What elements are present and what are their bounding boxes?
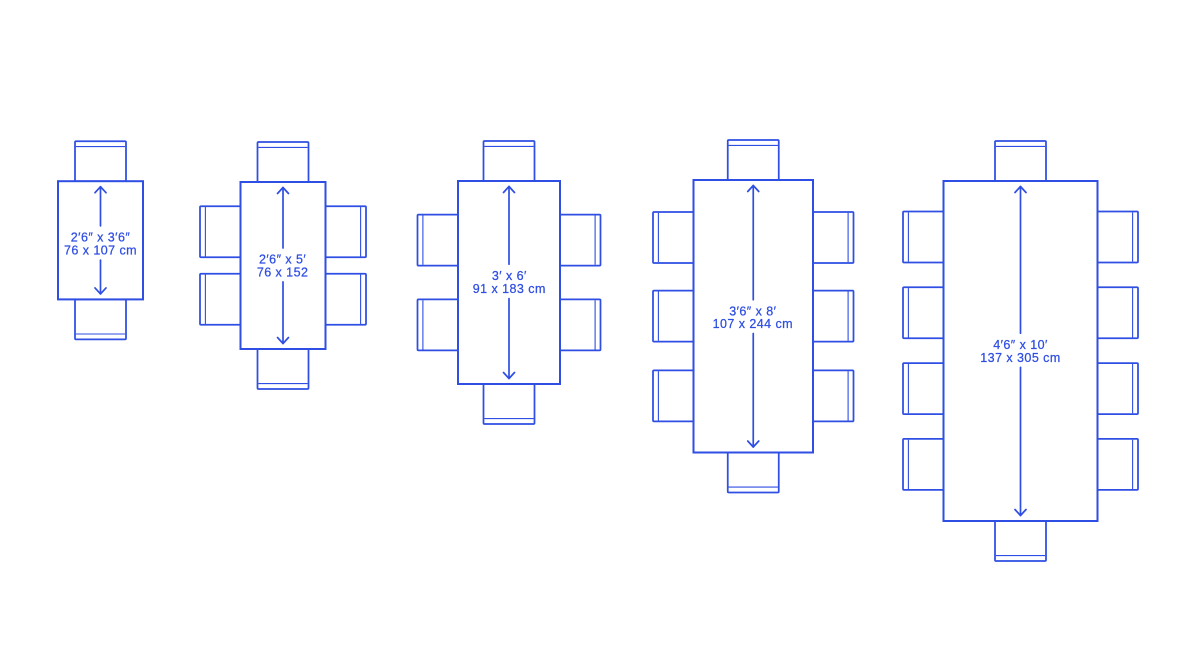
svg-text:91 x 183 cm: 91 x 183 cm <box>473 282 546 296</box>
svg-text:76 x 107 cm: 76 x 107 cm <box>64 244 137 258</box>
svg-text:76 x 152: 76 x 152 <box>257 266 309 280</box>
svg-text:3′ x 6′: 3′ x 6′ <box>492 269 527 283</box>
svg-text:107 x 244 cm: 107 x 244 cm <box>713 317 793 331</box>
svg-text:4′6″ x 10′: 4′6″ x 10′ <box>993 338 1048 352</box>
svg-text:2′6″ x 3′6″: 2′6″ x 3′6″ <box>71 231 131 245</box>
svg-text:2′6″ x 5′: 2′6″ x 5′ <box>259 253 306 267</box>
svg-text:137 x 305 cm: 137 x 305 cm <box>980 351 1060 365</box>
